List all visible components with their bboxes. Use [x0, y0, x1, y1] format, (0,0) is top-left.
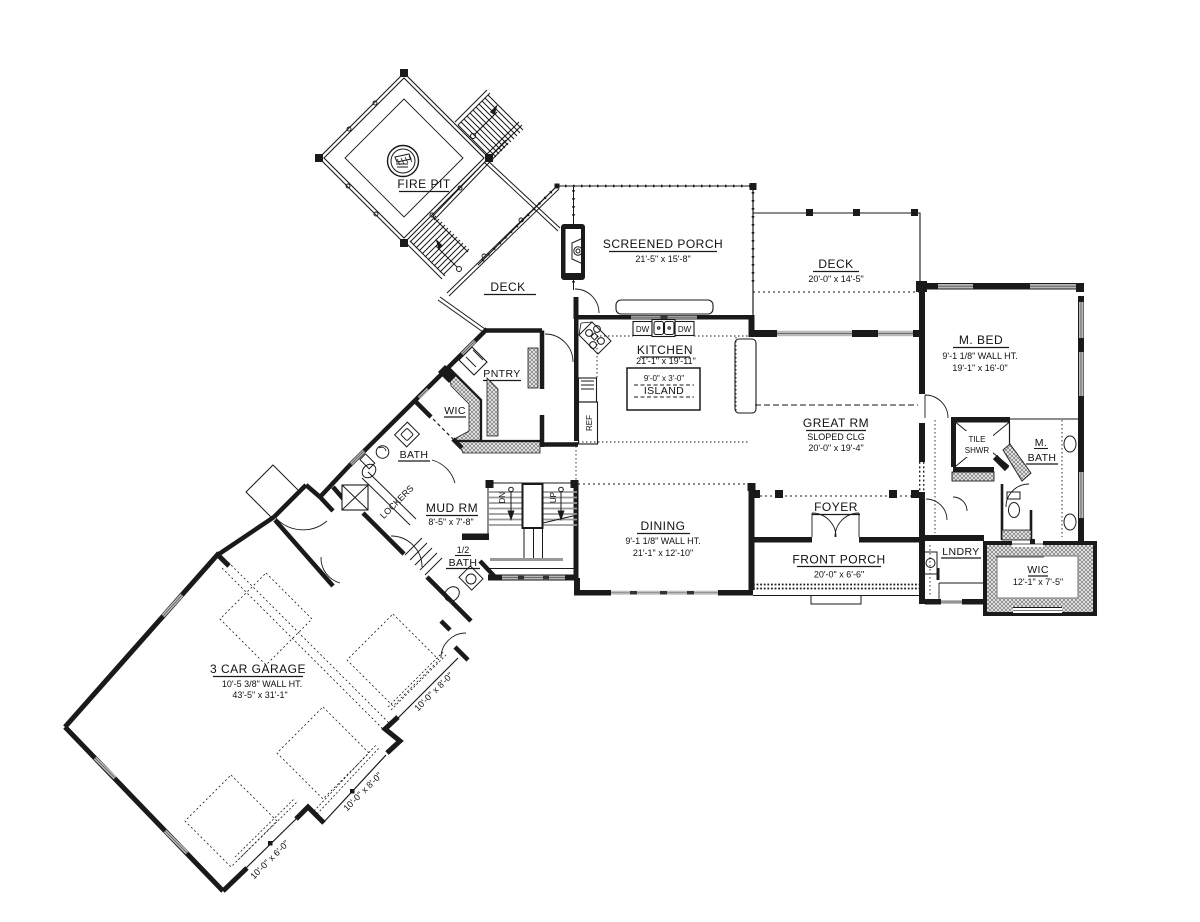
svg-text:9'-0" x 3'-0": 9'-0" x 3'-0"	[644, 374, 684, 383]
svg-text:SLOPED CLG: SLOPED CLG	[807, 432, 865, 442]
svg-text:12'-1" x 7'-5": 12'-1" x 7'-5"	[1013, 577, 1063, 587]
svg-text:WIC: WIC	[1027, 564, 1049, 576]
svg-text:M. BED: M. BED	[959, 333, 1003, 347]
svg-text:10'-5 3/8" WALL HT.: 10'-5 3/8" WALL HT.	[222, 679, 302, 689]
svg-text:ISLAND: ISLAND	[644, 385, 684, 397]
svg-text:KITCHEN: KITCHEN	[637, 343, 693, 357]
svg-text:WIC: WIC	[444, 405, 466, 417]
svg-text:SCREENED PORCH: SCREENED PORCH	[603, 237, 723, 251]
svg-text:DN: DN	[498, 492, 507, 504]
svg-text:FOYER: FOYER	[814, 500, 858, 514]
svg-text:MUD RM: MUD RM	[426, 501, 478, 515]
svg-text:20'-0" x 19'-4": 20'-0" x 19'-4"	[808, 443, 863, 453]
svg-text:FIRE PIT: FIRE PIT	[397, 177, 451, 191]
svg-text:UP: UP	[549, 492, 558, 503]
svg-text:43'-5" x 31'-1": 43'-5" x 31'-1"	[232, 690, 287, 700]
svg-text:SHWR: SHWR	[965, 446, 990, 455]
svg-text:TILE: TILE	[969, 435, 986, 444]
svg-text:21'-1" x 19'-11": 21'-1" x 19'-11"	[636, 356, 696, 366]
svg-text:BATH: BATH	[449, 557, 478, 569]
svg-text:DECK: DECK	[490, 280, 525, 294]
svg-text:M.: M.	[1035, 437, 1047, 449]
svg-text:FRONT PORCH: FRONT PORCH	[792, 553, 885, 567]
svg-text:20'-0" x 6'-6": 20'-0" x 6'-6"	[814, 570, 864, 580]
svg-text:21'-1" x 12'-10": 21'-1" x 12'-10"	[633, 548, 693, 558]
svg-text:9'-1 1/8" WALL HT.: 9'-1 1/8" WALL HT.	[942, 351, 1017, 361]
svg-text:DW: DW	[678, 325, 692, 334]
svg-text:DINING: DINING	[641, 519, 686, 533]
svg-text:19'-1" x 16'-0": 19'-1" x 16'-0"	[952, 363, 1007, 373]
svg-text:REF: REF	[585, 415, 594, 431]
svg-text:DW: DW	[636, 325, 650, 334]
svg-text:3 CAR GARAGE: 3 CAR GARAGE	[210, 662, 306, 676]
svg-text:BATH: BATH	[1028, 452, 1057, 464]
svg-text:21'-5" x 15'-8": 21'-5" x 15'-8"	[635, 254, 690, 264]
svg-text:DECK: DECK	[818, 257, 853, 271]
svg-text:8'-5" x 7'-8": 8'-5" x 7'-8"	[428, 517, 473, 527]
svg-text:LNDRY: LNDRY	[942, 546, 979, 558]
svg-text:GREAT RM: GREAT RM	[803, 416, 869, 430]
svg-text:20'-0" x 14'-5": 20'-0" x 14'-5"	[808, 274, 863, 284]
svg-text:BATH: BATH	[400, 449, 429, 461]
svg-text:PNTRY: PNTRY	[483, 368, 520, 380]
svg-text:9'-1 1/8" WALL HT.: 9'-1 1/8" WALL HT.	[625, 536, 700, 546]
svg-text:1/2: 1/2	[457, 545, 470, 555]
